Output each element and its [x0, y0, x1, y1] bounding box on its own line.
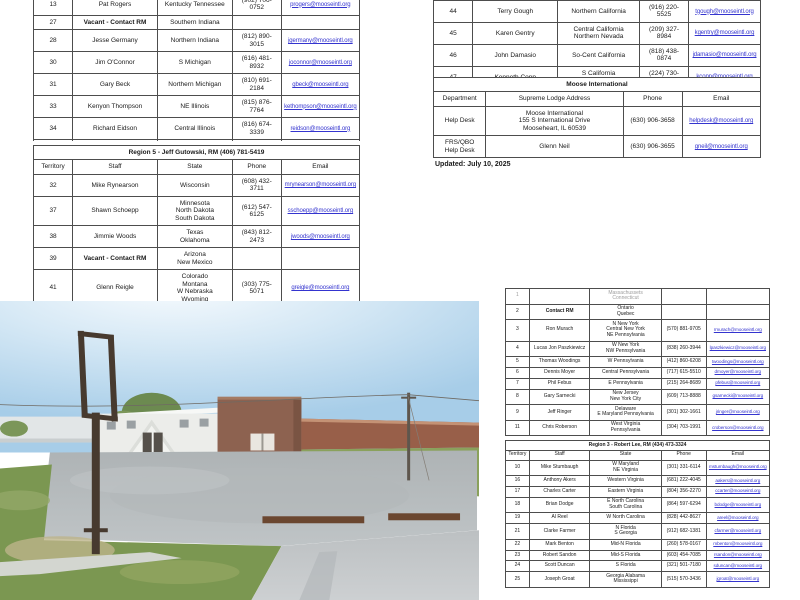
- email-cell: mstumbaugh@mooseintl.org: [706, 460, 769, 476]
- table-cell: 32: [34, 174, 73, 196]
- table-row: 24Scott DuncanS Florida(321) 501-7180sdu…: [506, 561, 770, 572]
- table-cell: Anthony Akers: [529, 476, 590, 487]
- email-cell: joconnor@mooseintl.org: [281, 52, 359, 74]
- table-cell: E Pennsylvania: [590, 378, 661, 389]
- email-link[interactable]: kethompson@mooseintl.org: [284, 104, 356, 110]
- table-cell: Vacant - Contact RM: [73, 15, 158, 29]
- table-row: 22Mark BentonMid-N Florida(260) 578-0167…: [506, 539, 770, 550]
- table-row: 8Gary SarneckiNew JerseyNew York City(60…: [506, 389, 770, 405]
- table-cell: Jeff Ringer: [529, 405, 590, 421]
- email-cell: progers@mooseintl.org: [281, 0, 359, 15]
- table-row: 23Robert SandonMid-S Florida(603) 454-70…: [506, 550, 770, 561]
- table-cell: 33: [34, 96, 73, 118]
- table-cell: W New YorkNW Pennsylvania: [590, 341, 661, 357]
- table-cell: 8: [506, 389, 530, 405]
- table-row: 1MassachussetsConnecticut: [506, 289, 770, 305]
- email-link[interactable]: jdamasio@mooseintl.org: [693, 52, 757, 58]
- table-cell: Kenyon Thompson: [73, 96, 158, 118]
- table-row: 46John DamasioSo-Cent California(818) 43…: [434, 44, 761, 66]
- table-cell: 30: [34, 52, 73, 74]
- table-cell: (864) 597-6294: [661, 497, 706, 513]
- table-cell: (828) 442-8627: [661, 513, 706, 524]
- table-cell: Northern California: [558, 1, 640, 23]
- table-cell: (515) 570-3436: [661, 572, 706, 588]
- table-cell: 6: [506, 367, 530, 378]
- email-cell: lpaszkiewicz@mooseintl.org: [706, 341, 769, 357]
- table-cell: 22: [506, 539, 530, 550]
- table-cell: Mike Rynearson: [73, 174, 158, 196]
- email-link[interactable]: sduncan@mooseintl.org: [714, 563, 763, 568]
- table-cell: 24: [506, 561, 530, 572]
- table-cell: Mid-S Florida: [590, 550, 661, 561]
- column-header: Email: [706, 450, 769, 460]
- table-cell: W Pennsylvania: [590, 357, 661, 368]
- table-cell: (618) 975-6442: [232, 140, 281, 141]
- email-cell: wdodd@mooseintl.org: [281, 140, 359, 141]
- email-link[interactable]: pfebus@mooseintl.org: [715, 380, 760, 385]
- email-link[interactable]: kgentry@mooseintl.org: [695, 30, 755, 36]
- email-link[interactable]: greigle@mooseintl.org: [291, 285, 349, 291]
- table-cell: 44: [434, 1, 473, 23]
- table-cell: E North CarolinaSouth Carolina: [590, 497, 661, 513]
- table-cell: [706, 289, 769, 305]
- email-link[interactable]: joconnor@mooseintl.org: [289, 60, 352, 66]
- table-cell: (609) 713-8888: [661, 389, 706, 405]
- table-cell: Pat Rogers: [73, 0, 158, 15]
- table-cell: Help Desk: [434, 106, 486, 135]
- email-link[interactable]: tgough@mooseintl.org: [695, 9, 753, 15]
- table-cell: Moose International155 S International D…: [486, 106, 623, 135]
- table-cell: Mid-N Florida: [590, 539, 661, 550]
- table-cell: 16: [506, 476, 530, 487]
- column-header: State: [590, 450, 661, 460]
- email-cell: jwoods@mooseintl.org: [281, 226, 359, 248]
- table-cell: Northern Michigan: [157, 74, 232, 96]
- column-header: Territory: [34, 160, 73, 174]
- email-cell: aakers@mooseintl.org: [706, 476, 769, 487]
- table-row: 16Anthony AkersWestern Virginia(681) 222…: [506, 476, 770, 487]
- table-cell: Central Pennsylvania: [590, 367, 661, 378]
- email-cell: helpdesk@mooseintl.org: [682, 106, 761, 135]
- column-header: Email: [682, 92, 761, 106]
- email-cell: kethompson@mooseintl.org: [281, 96, 359, 118]
- table-cell: 7: [506, 378, 530, 389]
- table-cell: Vacant - Contact RM: [73, 248, 158, 270]
- table-cell: 5: [506, 357, 530, 368]
- table-cell: Terry Gough: [473, 1, 558, 23]
- table-row: 11Chris RobersonWest VirginiaPennsylvani…: [506, 420, 770, 436]
- column-header: Supreme Lodge Address: [486, 92, 623, 106]
- table-cell: 34: [34, 118, 73, 140]
- email-cell: croberson@mooseintl.org: [706, 420, 769, 436]
- table-cell: Karen Gentry: [473, 22, 558, 44]
- email-cell: reidson@mooseintl.org: [281, 118, 359, 140]
- table-cell: [232, 15, 281, 29]
- building-photo: [0, 301, 479, 600]
- email-link[interactable]: bdodge@mooseintl.org: [715, 502, 762, 507]
- table-cell: MassachussetsConnecticut: [590, 289, 661, 305]
- table-row: 31Gary BeckNorthern Michigan(810) 691-21…: [34, 74, 360, 96]
- table-cell: 17: [506, 486, 530, 497]
- table-cell: Brian Dodge: [529, 497, 590, 513]
- table-cell: Al Reel: [529, 513, 590, 524]
- table-cell: TexasOklahoma: [157, 226, 232, 248]
- column-header: Phone: [661, 450, 706, 460]
- table-cell: Mark Benton: [529, 539, 590, 550]
- email-link[interactable]: mbenton@mooseintl.org: [713, 541, 762, 546]
- column-header: Territory: [506, 450, 530, 460]
- email-cell: gsarnecki@mooseintl.org: [706, 389, 769, 405]
- table-cell: 25: [506, 572, 530, 588]
- table-cell: [661, 289, 706, 305]
- email-link[interactable]: twoodings@mooseintl.org: [712, 359, 764, 364]
- email-cell: twoodings@mooseintl.org: [706, 357, 769, 368]
- table-cell: OntarioQuebec: [590, 304, 661, 320]
- table-row: 7Phil FebusE Pennsylvania(215) 264-8689p…: [506, 378, 770, 389]
- table-cell: Jesse Germany: [73, 30, 158, 52]
- table-cell: 27: [34, 15, 73, 29]
- table-cell: 1: [506, 289, 530, 305]
- table-cell: Gary Beck: [73, 74, 158, 96]
- table-cell: (812) 890-3015: [232, 30, 281, 52]
- email-cell: sschoepp@mooseintl.org: [281, 196, 359, 225]
- moose-international-table: Moose InternationalDepartmentSupreme Lod…: [433, 77, 761, 158]
- email-link[interactable]: ccarter@mooseintl.org: [715, 488, 760, 493]
- table-cell: (717) 615-5510: [661, 367, 706, 378]
- table-cell: Wisconsin: [157, 174, 232, 196]
- email-link[interactable]: rsandon@mooseintl.org: [714, 552, 762, 557]
- table-cell: S Florida: [590, 561, 661, 572]
- table-cell: (209) 327-8984: [640, 22, 689, 44]
- table-row: 19Al ReelW North Carolina(828) 442-8627a…: [506, 513, 770, 524]
- table-cell: [529, 289, 590, 305]
- table-cell: So-Cent California: [558, 44, 640, 66]
- table-cell: 13: [34, 0, 73, 15]
- table-row: 39Vacant - Contact RMArizonaNew Mexico: [34, 248, 360, 270]
- table-row: FRS/QBOHelp DeskGlenn Neil(630) 906-3655…: [434, 136, 761, 158]
- table-cell: [232, 248, 281, 270]
- email-link[interactable]: jgermany@mooseintl.org: [288, 38, 353, 44]
- email-cell: gneil@mooseintl.org: [682, 136, 761, 158]
- table-cell: 46: [434, 44, 473, 66]
- table-cell: Wendy Dodd: [73, 140, 158, 141]
- table-cell: (838) 260-3944: [661, 341, 706, 357]
- column-header: Staff: [529, 450, 590, 460]
- table-cell: 31: [34, 74, 73, 96]
- email-link[interactable]: rmurach@mooseintl.org: [714, 327, 762, 332]
- table-cell: W MarylandNE Virginia: [590, 460, 661, 476]
- table-cell: (916) 220-5525: [640, 1, 689, 23]
- table-cell: (902) 706-0752: [232, 0, 281, 15]
- table-cell: FRS/QBOHelp Desk: [434, 136, 486, 158]
- table-row: 18Brian DodgeE North CarolinaSouth Carol…: [506, 497, 770, 513]
- table-cell: 39: [34, 248, 73, 270]
- email-link[interactable]: croberson@mooseintl.org: [712, 425, 763, 430]
- column-header: State: [157, 160, 232, 174]
- column-header: Phone: [232, 160, 281, 174]
- table-cell: 3: [506, 320, 530, 341]
- table-title: Region 5 - Jeff Gutowski, RM (406) 781-5…: [34, 146, 360, 160]
- table-cell: MinnesotaNorth DakotaSouth Dakota: [157, 196, 232, 225]
- table-cell: [706, 304, 769, 320]
- table-cell: (630) 906-3658: [623, 106, 682, 135]
- table-row: 27Vacant - Contact RMSouthern Indiana: [34, 15, 360, 29]
- table-cell: Dennis Moyer: [529, 367, 590, 378]
- table-cell: Robert Sandon: [529, 550, 590, 561]
- table-cell: (321) 501-7180: [661, 561, 706, 572]
- table-cell: Shawn Schoepp: [73, 196, 158, 225]
- contact-table-california: 44Terry GoughNorthern California(916) 22…: [433, 0, 761, 89]
- table-cell: (630) 906-3655: [623, 136, 682, 158]
- email-link[interactable]: lpaszkiewicz@mooseintl.org: [710, 345, 766, 350]
- email-link[interactable]: gbeck@mooseintl.org: [292, 82, 348, 88]
- table-cell: Glenn Neil: [486, 136, 623, 158]
- email-cell: kgentry@mooseintl.org: [689, 22, 761, 44]
- table-cell: [281, 248, 359, 270]
- table-row: 10Mike StumbaughW MarylandNE Virginia(30…: [506, 460, 770, 476]
- table-cell: (612) 547-6125: [232, 196, 281, 225]
- table-cell: Lucas Jon Paszkiewicz: [529, 341, 590, 357]
- table-cell: 35: [34, 140, 73, 141]
- table-cell: Central Illinois: [157, 118, 232, 140]
- table-cell: Thomas Woodings: [529, 357, 590, 368]
- table-row: 28Jesse GermanyNorthern Indiana(812) 890…: [34, 30, 360, 52]
- table-row: 35Wendy DoddSouthern Illinois(618) 975-6…: [34, 140, 360, 141]
- region5-table: Region 5 - Jeff Gutowski, RM (406) 781-5…: [33, 145, 360, 307]
- table-cell: NE Illinois: [157, 96, 232, 118]
- table-cell: 4: [506, 341, 530, 357]
- table-cell: Jimmie Woods: [73, 226, 158, 248]
- email-cell: cfarmer@mooseintl.org: [706, 524, 769, 540]
- table-cell: Gary Sarnecki: [529, 389, 590, 405]
- table-cell: (608) 432-3711: [232, 174, 281, 196]
- email-cell: jdamasio@mooseintl.org: [689, 44, 761, 66]
- table-cell: N New YorkCentral New YorkNE Pennsylvani…: [590, 320, 661, 341]
- email-cell: gbeck@mooseintl.org: [281, 74, 359, 96]
- table-row: 4Lucas Jon PaszkiewiczW New YorkNW Penns…: [506, 341, 770, 357]
- table-row: 33Kenyon ThompsonNE Illinois(815) 876-77…: [34, 96, 360, 118]
- email-link[interactable]: areel@mooseintl.org: [717, 515, 758, 520]
- email-link[interactable]: helpdesk@mooseintl.org: [689, 118, 753, 124]
- table-cell: ArizonaNew Mexico: [157, 248, 232, 270]
- table-cell: Clarke Farmer: [529, 524, 590, 540]
- table-cell: Phil Febus: [529, 378, 590, 389]
- email-link[interactable]: dmoyer@mooseintl.org: [715, 369, 762, 374]
- table-cell: (815) 876-7764: [232, 96, 281, 118]
- email-cell: rmurach@mooseintl.org: [706, 320, 769, 341]
- table-cell: (818) 438-0874: [640, 44, 689, 66]
- contact-table-top-left: 13Pat RogersKentucky Tennessee(902) 706-…: [33, 0, 360, 141]
- table-row: 6Dennis MoyerCentral Pennsylvania(717) 6…: [506, 367, 770, 378]
- table-cell: (681) 222-4045: [661, 476, 706, 487]
- table-cell: (215) 264-8689: [661, 378, 706, 389]
- table-title: Moose International: [434, 78, 761, 92]
- table-row: 44Terry GoughNorthern California(916) 22…: [434, 1, 761, 23]
- table-cell: Joseph Groat: [529, 572, 590, 588]
- table-cell: 18: [506, 497, 530, 513]
- email-link[interactable]: aakers@mooseintl.org: [715, 478, 760, 483]
- table-cell: (412) 860-6208: [661, 357, 706, 368]
- table-row: Help DeskMoose International155 S Intern…: [434, 106, 761, 135]
- table-cell: Scott Duncan: [529, 561, 590, 572]
- table-cell: Ron Murach: [529, 320, 590, 341]
- table-cell: 2: [506, 304, 530, 320]
- table-cell: Western Virginia: [590, 476, 661, 487]
- email-cell: bdodge@mooseintl.org: [706, 497, 769, 513]
- table-cell: N FloridaS Georgia: [590, 524, 661, 540]
- column-header: Phone: [623, 92, 682, 106]
- table-cell: (912) 682-1381: [661, 524, 706, 540]
- table-cell: Kentucky Tennessee: [157, 0, 232, 15]
- table-cell: Southern Illinois: [157, 140, 232, 141]
- email-link[interactable]: mstumbaugh@mooseintl.org: [709, 464, 767, 469]
- table-cell: West VirginiaPennsylvania: [590, 420, 661, 436]
- email-cell: ccarter@mooseintl.org: [706, 486, 769, 497]
- table-cell: Mike Stumbaugh: [529, 460, 590, 476]
- column-header: Staff: [73, 160, 158, 174]
- table-cell: (804) 356-2270: [661, 486, 706, 497]
- table-row: 45Karen GentryCentral CaliforniaNorthern…: [434, 22, 761, 44]
- table-row: 9Jeff RingerDelawareE Maryland Pennsylva…: [506, 405, 770, 421]
- table-cell: 19: [506, 513, 530, 524]
- table-cell: (301) 302-1661: [661, 405, 706, 421]
- table-cell: Georgia AlabamaMississippi: [590, 572, 661, 588]
- table-cell: 10: [506, 460, 530, 476]
- table-cell: New JerseyNew York City: [590, 389, 661, 405]
- updated-date-label: Updated: July 10, 2025: [435, 161, 510, 168]
- email-link[interactable]: jringer@mooseintl.org: [716, 409, 760, 414]
- table-cell: Jim O'Connor: [73, 52, 158, 74]
- table-row: 17Charles CarterEastern Virginia(804) 35…: [506, 486, 770, 497]
- table-row: 21Clarke FarmerN FloridaS Georgia(912) 6…: [506, 524, 770, 540]
- table-cell: Contact RM: [529, 304, 590, 320]
- email-link[interactable]: cfarmer@mooseintl.org: [714, 528, 761, 533]
- email-cell: mrynearson@mooseintl.org: [281, 174, 359, 196]
- table-cell: (301) 331-6114: [661, 460, 706, 476]
- table-cell: Northern Indiana: [157, 30, 232, 52]
- email-cell: jringer@mooseintl.org: [706, 405, 769, 421]
- column-header: Department: [434, 92, 486, 106]
- table-cell: 21: [506, 524, 530, 540]
- table-row: 34Richard EidsonCentral Illinois(816) 67…: [34, 118, 360, 140]
- email-cell: pfebus@mooseintl.org: [706, 378, 769, 389]
- table-row: 2Contact RMOntarioQuebec: [506, 304, 770, 320]
- table-row: 37Shawn SchoeppMinnesotaNorth DakotaSout…: [34, 196, 360, 225]
- table-cell: 9: [506, 405, 530, 421]
- table-cell: [661, 304, 706, 320]
- building-photo-art: [0, 301, 479, 600]
- table-cell: (260) 578-0167: [661, 539, 706, 550]
- table-cell: Charles Carter: [529, 486, 590, 497]
- table-cell: (570) 881-9705: [661, 320, 706, 341]
- table-row: 30Jim O'ConnorS Michigan(616) 481-8932jo…: [34, 52, 360, 74]
- table-title: Region 3 - Robert Lee, RM (434) 473-3324: [506, 441, 770, 451]
- email-cell: jgroat@mooseintl.org: [706, 572, 769, 588]
- email-link[interactable]: gsarnecki@mooseintl.org: [712, 393, 763, 398]
- table-cell: (843) 812-2473: [232, 226, 281, 248]
- table-row: 25Joseph GroatGeorgia AlabamaMississippi…: [506, 572, 770, 588]
- table-cell: Richard Eidson: [73, 118, 158, 140]
- table-row: 13Pat RogersKentucky Tennessee(902) 706-…: [34, 0, 360, 15]
- email-cell: sduncan@mooseintl.org: [706, 561, 769, 572]
- email-link[interactable]: progers@mooseintl.org: [290, 2, 350, 8]
- email-link[interactable]: gneil@mooseintl.org: [695, 144, 748, 150]
- table-cell: Central CaliforniaNorthern Nevada: [558, 22, 640, 44]
- email-cell: rsandon@mooseintl.org: [706, 550, 769, 561]
- email-cell: jgermany@mooseintl.org: [281, 30, 359, 52]
- table-row: 5Thomas WoodingsW Pennsylvania(412) 860-…: [506, 357, 770, 368]
- table-cell: (816) 674-3339: [232, 118, 281, 140]
- column-header: Email: [281, 160, 359, 174]
- email-cell: dmoyer@mooseintl.org: [706, 367, 769, 378]
- email-link[interactable]: sschoepp@mooseintl.org: [288, 208, 354, 214]
- table-cell: Southern Indiana: [157, 15, 232, 29]
- email-link[interactable]: mrynearson@mooseintl.org: [285, 182, 356, 188]
- table-cell: 23: [506, 550, 530, 561]
- table-cell: Eastern Virginia: [590, 486, 661, 497]
- email-link[interactable]: jwoods@mooseintl.org: [291, 234, 350, 240]
- contact-table-northeast: 1MassachussetsConnecticut2Contact RMOnta…: [505, 288, 770, 436]
- table-row: 32Mike RynearsonWisconsin(608) 432-3711m…: [34, 174, 360, 196]
- email-link[interactable]: reidson@mooseintl.org: [291, 126, 351, 132]
- table-cell: (616) 481-8932: [232, 52, 281, 74]
- table-row: 38Jimmie WoodsTexasOklahoma(843) 812-247…: [34, 226, 360, 248]
- table-cell: S Michigan: [157, 52, 232, 74]
- table-cell: 28: [34, 30, 73, 52]
- email-cell: mbenton@mooseintl.org: [706, 539, 769, 550]
- table-cell: 37: [34, 196, 73, 225]
- table-cell: 11: [506, 420, 530, 436]
- table-row: 3Ron MurachN New YorkCentral New YorkNE …: [506, 320, 770, 341]
- email-cell: tgough@mooseintl.org: [689, 1, 761, 23]
- table-cell: (304) 703-1991: [661, 420, 706, 436]
- table-cell: (603) 454-7085: [661, 550, 706, 561]
- table-cell: [281, 15, 359, 29]
- email-cell: areel@mooseintl.org: [706, 513, 769, 524]
- email-link[interactable]: jgroat@mooseintl.org: [716, 576, 759, 581]
- table-cell: (810) 691-2184: [232, 74, 281, 96]
- table-cell: Chris Roberson: [529, 420, 590, 436]
- table-cell: 38: [34, 226, 73, 248]
- region3-table: Region 3 - Robert Lee, RM (434) 473-3324…: [505, 440, 770, 588]
- table-cell: John Damasio: [473, 44, 558, 66]
- table-cell: DelawareE Maryland Pennsylvania: [590, 405, 661, 421]
- table-cell: W North Carolina: [590, 513, 661, 524]
- directory-page: 13Pat RogersKentucky Tennessee(902) 706-…: [0, 0, 800, 600]
- table-cell: 45: [434, 22, 473, 44]
